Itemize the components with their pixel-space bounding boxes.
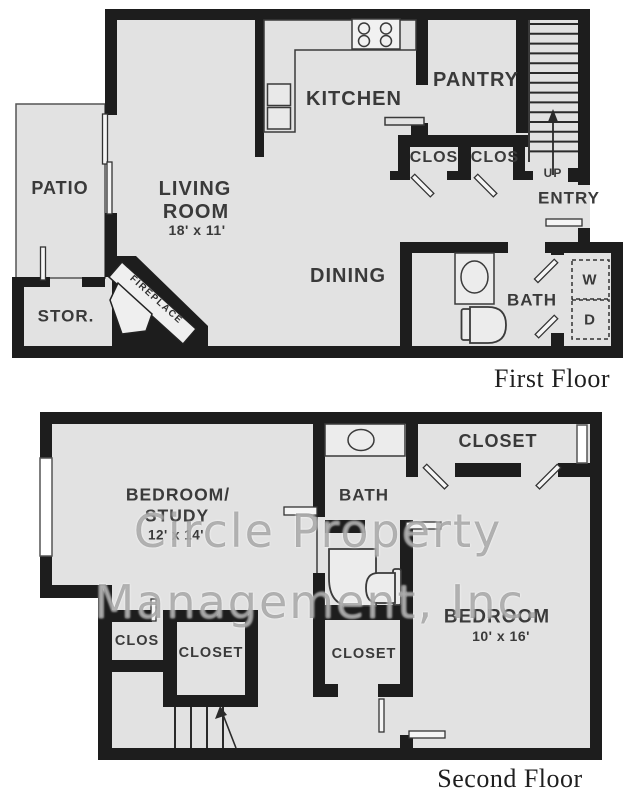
bath-vanity <box>325 424 405 456</box>
storage-door <box>41 247 46 280</box>
label-washer: W <box>582 273 597 288</box>
label-bedroom-dims: 10' x 16' <box>472 629 530 643</box>
door-post <box>151 599 156 621</box>
label-dryer: D <box>584 313 596 328</box>
label-storage: STOR. <box>38 308 95 325</box>
label-living-room: ROOM <box>163 202 229 222</box>
label-bath: BATH <box>507 292 557 309</box>
label-closet-bottom: CLOSET <box>179 646 244 661</box>
label-closet-middle: CLOSET <box>332 647 397 662</box>
label-clos-2: CLOS <box>115 634 159 649</box>
label-bedroom-study: BEDROOM/ <box>126 486 230 504</box>
toilet-icon <box>462 307 507 343</box>
door-swing <box>409 731 445 738</box>
label-living-dims: 18' x 11' <box>168 223 225 237</box>
label-bedroom-study-dims: 12' x 14' <box>148 528 204 542</box>
peninsula-counter <box>385 118 424 126</box>
label-clos-left: CLOS <box>410 150 458 166</box>
label-living-room: LIVING <box>159 179 232 199</box>
label-up: UP <box>544 167 563 179</box>
label-kitchen: KITCHEN <box>306 89 402 109</box>
second-floor-caption: Second Floor <box>437 764 582 794</box>
second-floor-plan <box>40 412 602 760</box>
label-dining: DINING <box>310 266 386 286</box>
door-swing <box>284 507 317 515</box>
label-bath-2: BATH <box>339 487 389 504</box>
label-entry: ENTRY <box>538 190 600 207</box>
first-floor-caption: First Floor <box>494 364 610 394</box>
label-bedroom-study: STUDY <box>145 507 209 525</box>
window <box>40 458 52 556</box>
toilet-icon <box>366 569 401 605</box>
label-clos-right: CLOS <box>471 150 519 166</box>
floor-plan: PATIO LIVING ROOM 18' x 11' KITCHEN PANT… <box>0 0 636 800</box>
label-closet-top: CLOSET <box>458 432 537 450</box>
label-bedroom: BEDROOM <box>444 608 550 627</box>
label-patio: PATIO <box>31 179 88 197</box>
label-pantry: PANTRY <box>433 70 519 90</box>
wall-slot <box>577 425 587 463</box>
door-swing <box>379 699 384 732</box>
door-swing <box>406 522 441 529</box>
floor-plan-drawing <box>0 0 636 800</box>
entry-door <box>546 219 582 226</box>
